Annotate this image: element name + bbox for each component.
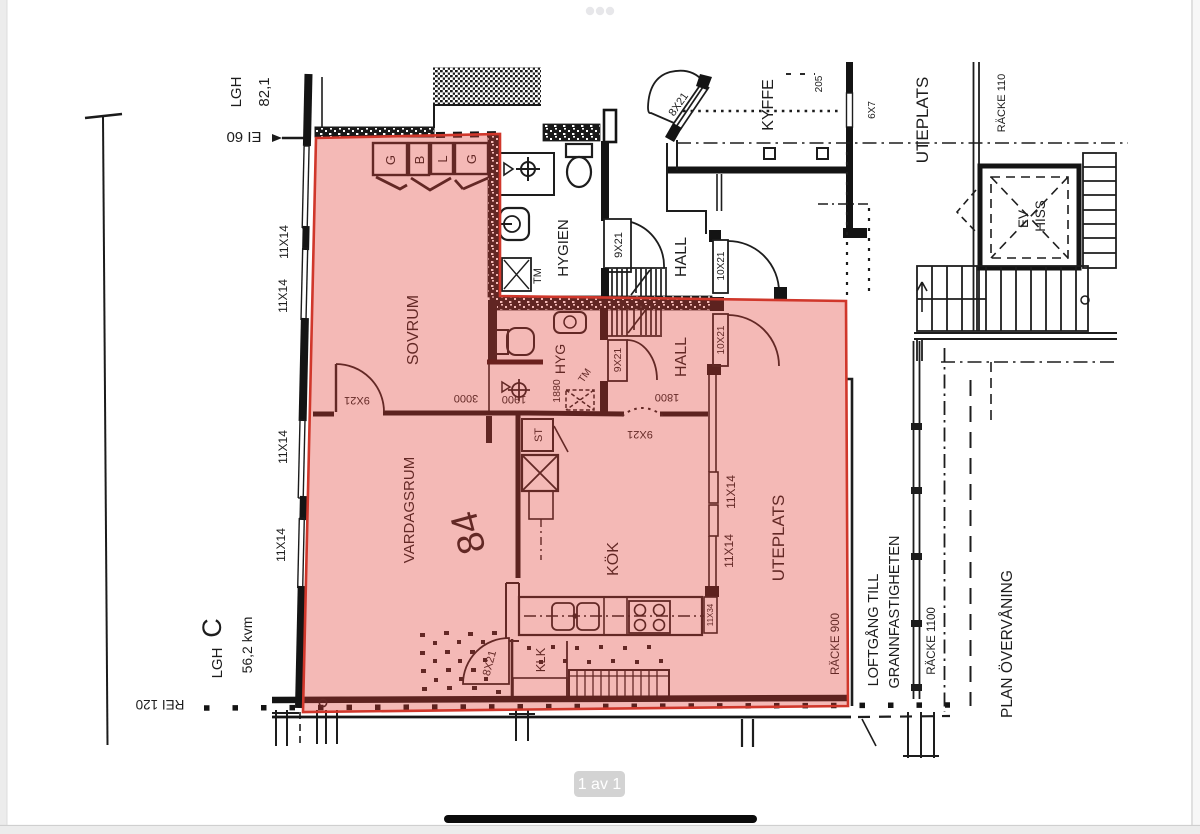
svg-text:LGH: LGH xyxy=(209,648,226,679)
svg-text:REI 120: REI 120 xyxy=(136,697,185,712)
svg-text:RÄCKE 1100: RÄCKE 1100 xyxy=(926,607,938,675)
svg-text:C: C xyxy=(197,618,227,638)
svg-text:82,1: 82,1 xyxy=(256,77,273,106)
svg-text:LOFTGÅNG TILL: LOFTGÅNG TILL xyxy=(865,574,882,687)
svg-text:TM: TM xyxy=(532,268,544,284)
svg-text:11X14: 11X14 xyxy=(276,279,290,313)
svg-text:EI 60: EI 60 xyxy=(226,128,261,145)
svg-text:56,2 kvm: 56,2 kvm xyxy=(239,617,255,674)
svg-text:GRANNFASTIGHETEN: GRANNFASTIGHETEN xyxy=(887,535,903,688)
svg-text:PLAN ÖVERVÅNING: PLAN ÖVERVÅNING xyxy=(998,570,1016,718)
svg-text:RÄCKE 110: RÄCKE 110 xyxy=(996,74,1008,133)
svg-text:UTEPLATS: UTEPLATS xyxy=(913,77,932,164)
svg-text:11X14: 11X14 xyxy=(277,225,291,259)
svg-text:9X21: 9X21 xyxy=(613,232,625,258)
svg-text:11X14: 11X14 xyxy=(276,430,290,464)
svg-text:205: 205 xyxy=(814,75,825,92)
svg-text:6X7: 6X7 xyxy=(867,101,878,119)
svg-text:EV: EV xyxy=(1016,210,1031,228)
svg-text:11X14: 11X14 xyxy=(274,528,288,562)
svg-text:HYGIEN: HYGIEN xyxy=(555,219,572,277)
svg-text:10X21: 10X21 xyxy=(716,251,727,280)
svg-text:HALL: HALL xyxy=(673,237,690,277)
svg-text:LGH: LGH xyxy=(228,77,245,108)
svg-text:1 av 1: 1 av 1 xyxy=(578,776,622,793)
svg-text:KYFFE: KYFFE xyxy=(760,79,777,131)
svg-text:HISS: HISS xyxy=(1033,200,1048,232)
